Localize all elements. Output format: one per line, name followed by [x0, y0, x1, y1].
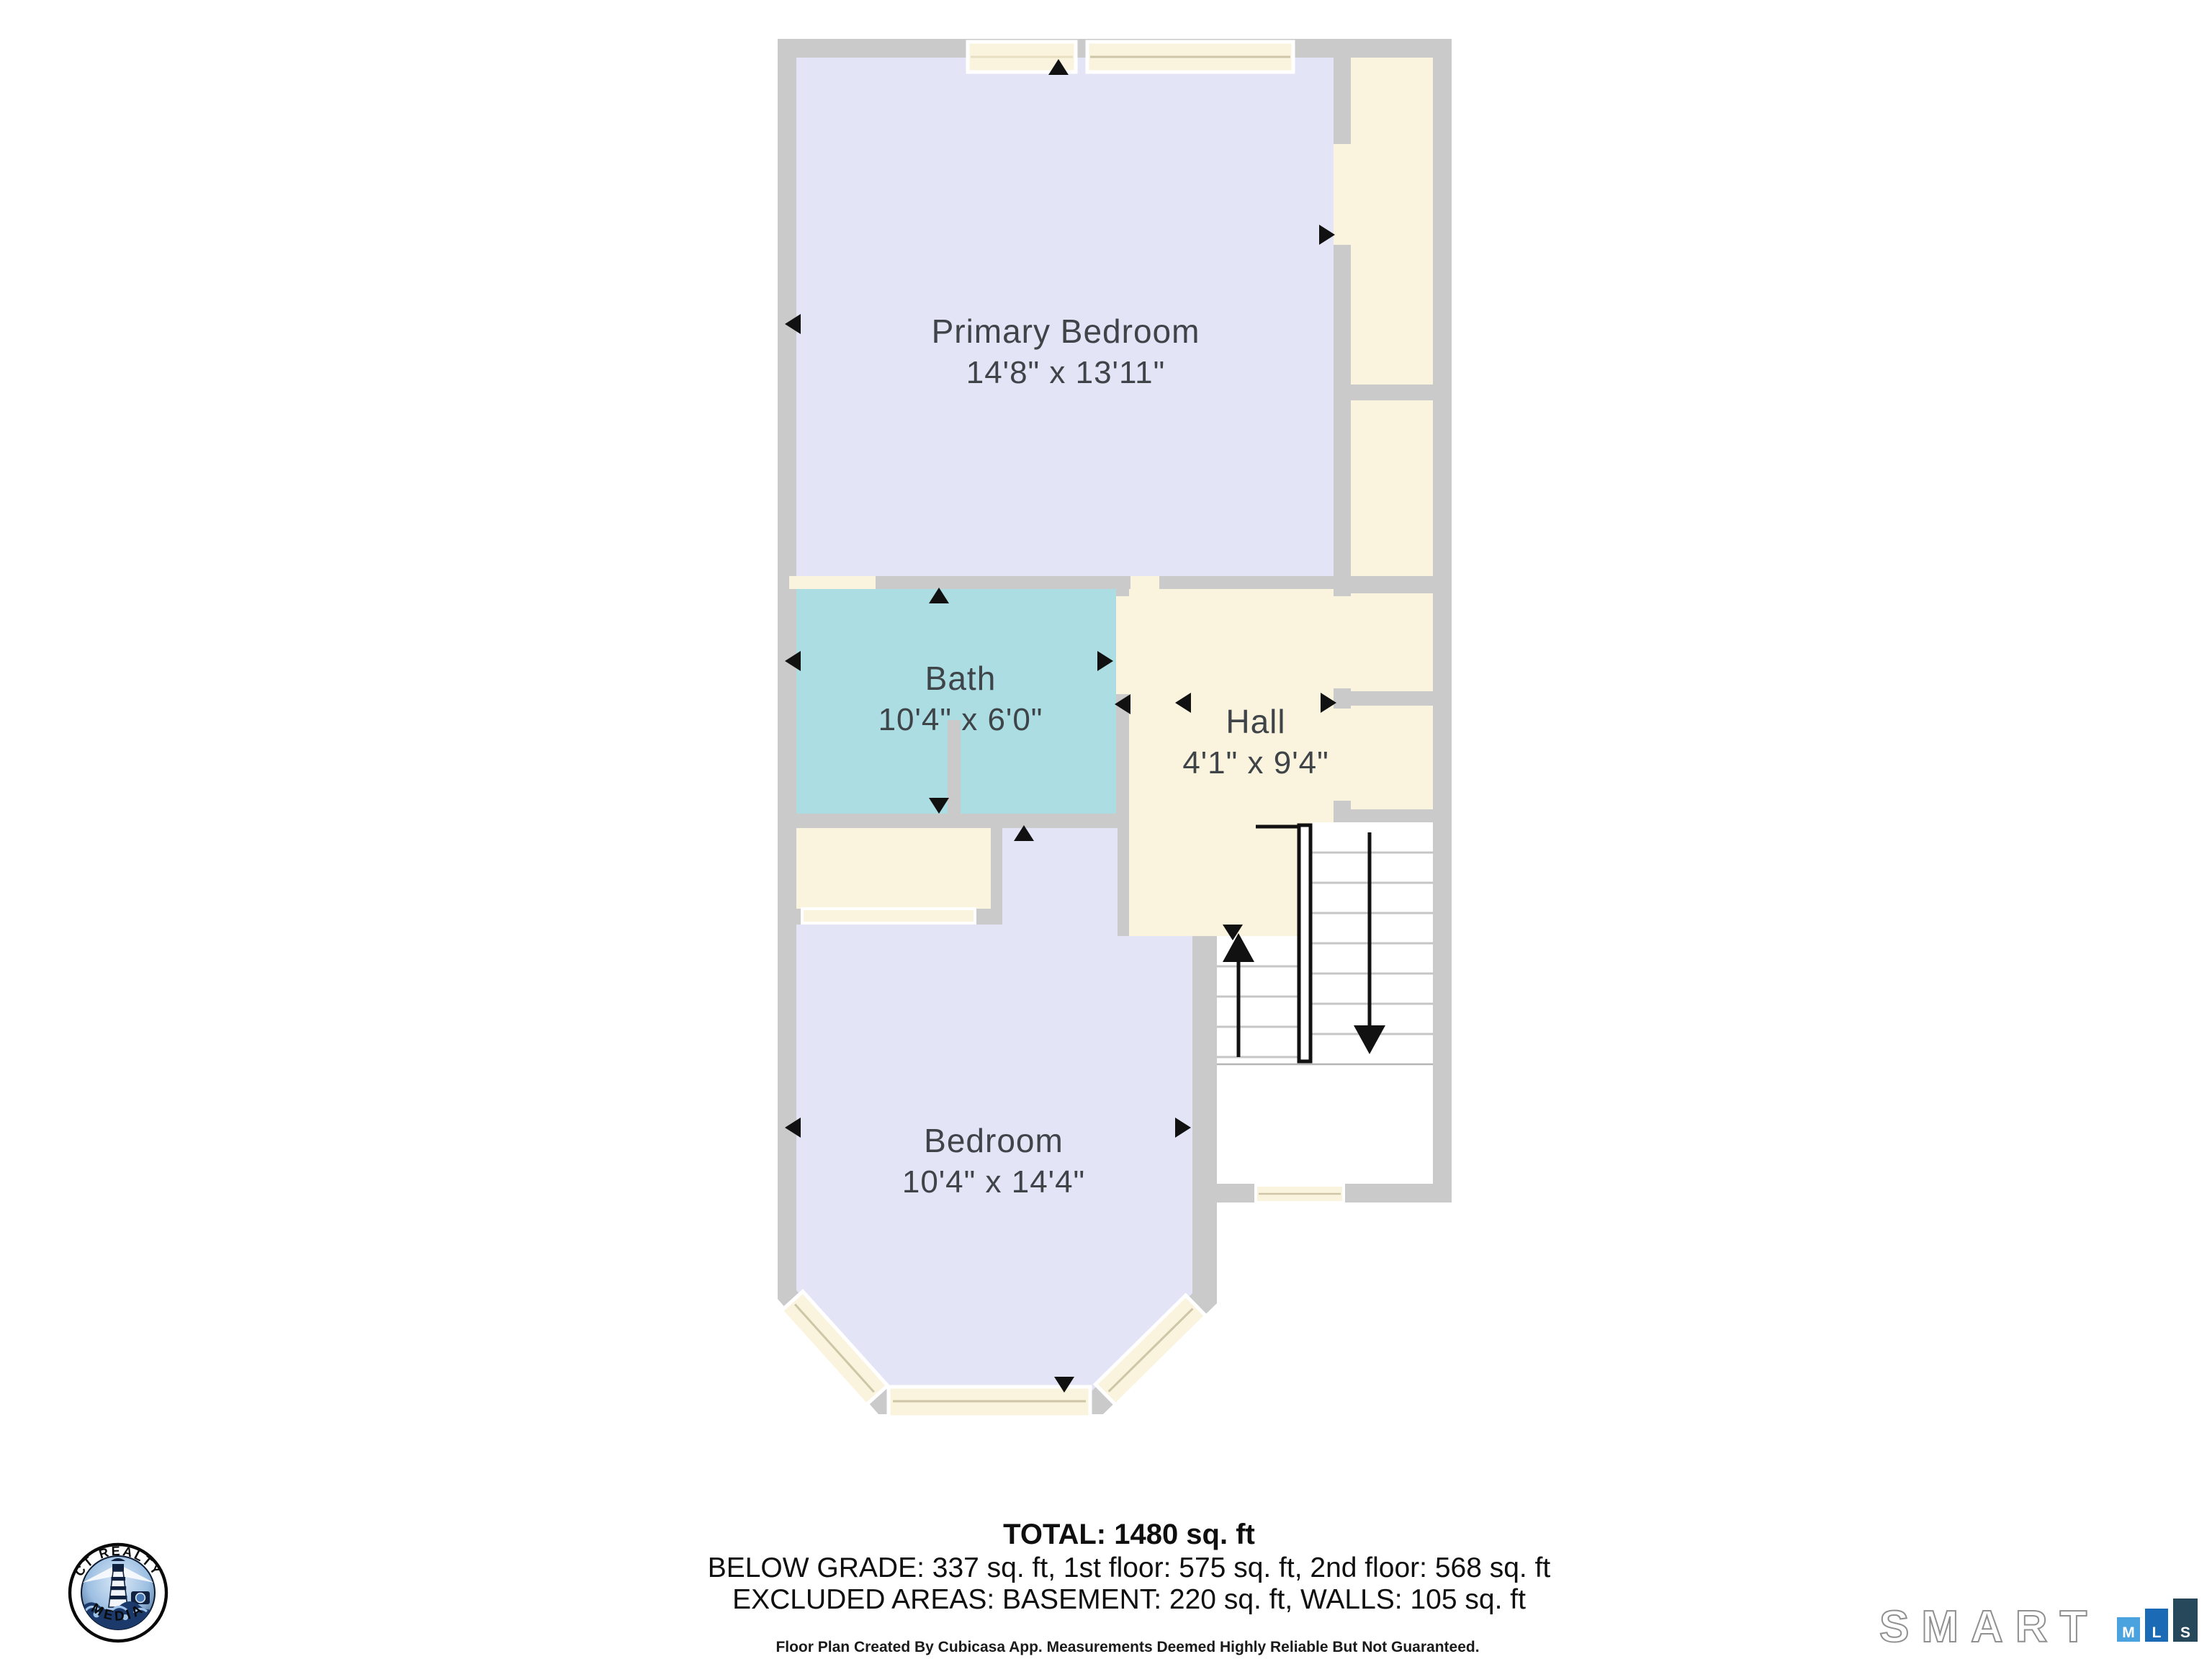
window	[1087, 42, 1293, 72]
svg-text:L: L	[2152, 1624, 2162, 1641]
room-dims-hall: 4'1" x 9'4"	[1182, 745, 1328, 781]
closet-below-bath	[796, 828, 991, 909]
window	[1256, 1185, 1344, 1202]
mls-squares: M L S	[2117, 1599, 2198, 1642]
room-dims-primary-bedroom: 14'8" x 13'11"	[966, 355, 1166, 390]
stairs-landing	[1217, 1064, 1433, 1184]
summary-excluded: EXCLUDED AREAS: BASEMENT: 220 sq. ft, WA…	[732, 1584, 1526, 1615]
svg-text:M: M	[2122, 1624, 2135, 1641]
room-dims-bath: 10'4" x 6'0"	[878, 702, 1043, 737]
closet-upper-right	[1351, 400, 1433, 576]
room-label-bath: Bath	[925, 660, 997, 697]
summary-block: TOTAL: 1480 sq. ft BELOW GRADE: 337 sq. …	[708, 1519, 1551, 1655]
room-label-bedroom: Bedroom	[924, 1122, 1064, 1159]
svg-text:S: S	[2180, 1624, 2190, 1641]
closet-c	[1351, 706, 1433, 809]
floor-plan-canvas: Primary Bedroom 14'8" x 13'11" Bath 10'4…	[0, 0, 2212, 1659]
closet-shelf	[802, 909, 975, 923]
bay-window-bottom	[889, 1387, 1090, 1417]
summary-total: TOTAL: 1480 sq. ft	[1003, 1519, 1255, 1550]
closet-b	[1351, 593, 1433, 691]
smart-word: SMART	[1879, 1602, 2099, 1652]
summary-below-grade: BELOW GRADE: 337 sq. ft, 1st floor: 575 …	[708, 1552, 1551, 1583]
ct-realty-media-logo: CT REALTY MEDIA	[70, 1544, 166, 1641]
room-label-hall: Hall	[1226, 703, 1285, 740]
floor-plan-page: { "plan": { "rooms": [ {"id": "primary-b…	[0, 0, 2212, 1659]
room-label-primary-bedroom: Primary Bedroom	[932, 313, 1200, 350]
summary-disclaimer: Floor Plan Created By Cubicasa App. Meas…	[775, 1639, 1479, 1655]
room-dims-bedroom: 10'4" x 14'4"	[902, 1164, 1085, 1200]
smart-mls-logo: SMART M L S	[1879, 1599, 2198, 1652]
closet-tall	[1351, 58, 1433, 385]
